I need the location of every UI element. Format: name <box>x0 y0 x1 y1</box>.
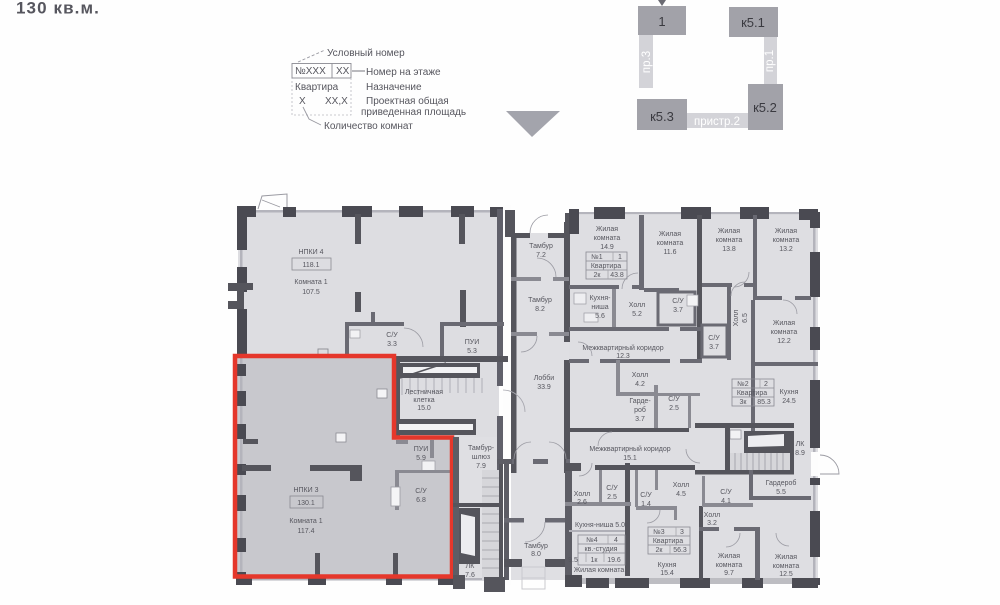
svg-text:2.6: 2.6 <box>577 499 587 506</box>
svg-text:НПКИ 4: НПКИ 4 <box>298 249 323 256</box>
svg-text:Межквартирный коридор: Межквартирный коридор <box>589 445 670 453</box>
svg-text:Условный номер: Условный номер <box>327 48 405 59</box>
svg-text:Жилая: Жилая <box>596 226 618 233</box>
svg-text:1: 1 <box>618 254 622 261</box>
svg-text:№XXX: №XXX <box>295 66 326 77</box>
svg-text:комната: комната <box>594 235 621 242</box>
svg-text:С/У: С/У <box>672 298 684 305</box>
svg-text:к5.2: к5.2 <box>753 100 777 115</box>
svg-text:15.1: 15.1 <box>623 455 637 462</box>
svg-text:7.6: 7.6 <box>465 572 475 579</box>
svg-text:Холл: Холл <box>733 310 740 327</box>
svg-text:12.3: 12.3 <box>616 353 630 360</box>
svg-text:3.7: 3.7 <box>709 344 719 351</box>
svg-text:13.8: 13.8 <box>722 246 736 253</box>
svg-text:роб: роб <box>634 406 646 414</box>
svg-text:комната: комната <box>716 237 743 244</box>
svg-text:6.8: 6.8 <box>416 497 426 504</box>
svg-text:Кухня: Кухня <box>658 562 677 569</box>
svg-text:Кухня: Кухня <box>780 389 799 396</box>
svg-text:Жилая комната: Жилая комната <box>574 567 625 574</box>
svg-text:С/У: С/У <box>720 489 732 496</box>
svg-text:2.5: 2.5 <box>607 494 617 501</box>
svg-text:Тамбур: Тамбур <box>529 242 553 250</box>
svg-text:6.5: 6.5 <box>742 313 749 323</box>
svg-text:13.2: 13.2 <box>779 246 793 253</box>
svg-text:кв.-студия: кв.-студия <box>585 546 618 553</box>
svg-text:1: 1 <box>658 14 665 29</box>
svg-text:Назначение: Назначение <box>366 82 422 93</box>
svg-text:3к: 3к <box>740 399 748 406</box>
svg-text:Кухня-: Кухня- <box>589 295 611 302</box>
svg-text:117.4: 117.4 <box>298 528 315 535</box>
svg-text:НПКИ 3: НПКИ 3 <box>293 487 318 494</box>
svg-text:Кухня-ниша 5.0: Кухня-ниша 5.0 <box>575 522 625 529</box>
svg-text:Количество комнат: Количество комнат <box>324 121 413 132</box>
svg-text:№3: №3 <box>653 529 665 536</box>
svg-text:Межквартирный коридор: Межквартирный коридор <box>582 344 663 352</box>
svg-text:Гардероб: Гардероб <box>766 479 797 487</box>
svg-text:Жилая: Жилая <box>718 553 740 560</box>
svg-text:14.9: 14.9 <box>600 244 614 251</box>
svg-text:Комната 1: Комната 1 <box>289 518 322 525</box>
svg-text:Проектная общая: Проектная общая <box>366 95 449 107</box>
svg-text:33.9: 33.9 <box>537 384 551 391</box>
svg-text:Гарде-: Гарде- <box>629 398 651 405</box>
svg-text:к5.1: к5.1 <box>741 15 765 30</box>
svg-text:3.2: 3.2 <box>707 520 717 527</box>
svg-text:комната: комната <box>773 563 800 570</box>
svg-text:9.5: 9.5 <box>568 557 578 564</box>
svg-text:к5.3: к5.3 <box>650 109 674 124</box>
svg-text:3.3: 3.3 <box>387 341 397 348</box>
svg-text:2: 2 <box>764 381 768 388</box>
svg-text:ЛК: ЛК <box>466 563 476 570</box>
svg-text:1.4: 1.4 <box>641 501 651 508</box>
svg-text:15.4: 15.4 <box>660 570 674 577</box>
svg-text:11.6: 11.6 <box>663 249 676 256</box>
svg-text:С/У: С/У <box>640 492 652 499</box>
svg-text:ЛК: ЛК <box>796 441 806 448</box>
svg-text:107.5: 107.5 <box>302 289 320 296</box>
svg-text:118.1: 118.1 <box>303 262 320 269</box>
svg-text:Квартира: Квартира <box>653 538 683 545</box>
svg-text:комната: комната <box>773 237 800 244</box>
svg-text:№2: №2 <box>737 381 749 388</box>
svg-text:15.0: 15.0 <box>417 405 431 412</box>
svg-text:Холл: Холл <box>629 302 646 309</box>
svg-text:24.5: 24.5 <box>782 398 796 405</box>
svg-text:ПУИ: ПУИ <box>465 339 480 346</box>
svg-text:С/У: С/У <box>668 396 680 403</box>
svg-text:Жилая: Жилая <box>718 228 740 235</box>
svg-text:12.2: 12.2 <box>777 338 791 345</box>
svg-text:Лестничная: Лестничная <box>405 389 443 396</box>
svg-text:Жилая: Жилая <box>773 320 795 327</box>
svg-text:Жилая: Жилая <box>775 228 797 235</box>
svg-text:Холл: Холл <box>704 512 721 519</box>
svg-text:Жилая: Жилая <box>775 554 797 561</box>
svg-text:№4: №4 <box>586 537 598 544</box>
svg-text:ПУИ: ПУИ <box>414 446 429 453</box>
svg-text:ниша: ниша <box>591 304 608 311</box>
svg-text:Квартира: Квартира <box>737 390 767 397</box>
svg-text:Тамбур: Тамбур <box>528 296 552 304</box>
svg-text:5.9: 5.9 <box>416 455 426 462</box>
svg-text:3.7: 3.7 <box>673 307 683 314</box>
svg-text:8.9: 8.9 <box>795 450 805 457</box>
svg-text:7.2: 7.2 <box>536 252 546 259</box>
svg-text:Тамбур-: Тамбур- <box>468 444 495 452</box>
svg-text:комната: комната <box>657 240 684 247</box>
svg-text:5.6: 5.6 <box>595 313 605 320</box>
svg-text:4.5: 4.5 <box>676 491 686 498</box>
svg-text:5.2: 5.2 <box>632 311 642 318</box>
svg-text:8.0: 8.0 <box>531 551 541 558</box>
svg-text:XX,X: XX,X <box>325 96 348 107</box>
svg-text:3: 3 <box>680 529 684 536</box>
svg-text:3.7: 3.7 <box>635 416 645 423</box>
svg-text:Холл: Холл <box>632 372 649 379</box>
svg-text:130.1: 130.1 <box>297 500 315 507</box>
svg-text:Холл: Холл <box>673 482 690 489</box>
svg-text:№1: №1 <box>591 254 603 261</box>
svg-text:С/У: С/У <box>386 332 398 339</box>
svg-text:2.5: 2.5 <box>669 405 679 412</box>
svg-text:Квартира: Квартира <box>295 82 339 93</box>
svg-text:12.5: 12.5 <box>779 571 793 578</box>
svg-text:7.9: 7.9 <box>476 463 486 470</box>
svg-text:Жилая: Жилая <box>659 231 681 238</box>
svg-text:8.2: 8.2 <box>535 306 545 313</box>
svg-text:пр.1: пр.1 <box>764 50 776 72</box>
svg-text:1к: 1к <box>591 557 599 564</box>
svg-text:шлюз: шлюз <box>472 454 490 461</box>
svg-text:пр.3: пр.3 <box>641 51 653 73</box>
svg-text:С/У: С/У <box>708 335 720 342</box>
svg-text:56.3: 56.3 <box>673 547 687 554</box>
svg-text:5.3: 5.3 <box>467 348 477 355</box>
svg-text:С/У: С/У <box>606 485 618 492</box>
svg-text:85.3: 85.3 <box>757 399 771 406</box>
svg-text:4: 4 <box>614 537 618 544</box>
svg-text:2к: 2к <box>594 272 602 279</box>
svg-text:приведенная площадь: приведенная площадь <box>361 107 466 118</box>
svg-text:Холл: Холл <box>574 491 591 498</box>
svg-text:130 кв.м.: 130 кв.м. <box>16 0 100 18</box>
svg-text:Квартира: Квартира <box>591 263 621 270</box>
svg-text:Лобби: Лобби <box>534 374 555 382</box>
svg-text:комната: комната <box>716 562 743 569</box>
svg-text:пристр.2: пристр.2 <box>694 116 740 128</box>
svg-text:43.8: 43.8 <box>610 272 624 279</box>
svg-text:X: X <box>299 96 306 107</box>
svg-text:клетка: клетка <box>413 397 434 404</box>
svg-text:4.2: 4.2 <box>635 381 645 388</box>
svg-text:Комната 1: Комната 1 <box>294 279 327 286</box>
svg-text:4.1: 4.1 <box>721 498 731 505</box>
svg-text:С/У: С/У <box>415 488 427 495</box>
svg-text:комната: комната <box>771 329 798 336</box>
svg-text:Тамбур: Тамбур <box>524 542 548 550</box>
svg-text:9.7: 9.7 <box>724 570 734 577</box>
svg-text:XX: XX <box>336 66 350 77</box>
svg-text:5.5: 5.5 <box>776 489 786 496</box>
svg-text:Номер на этаже: Номер на этаже <box>366 67 441 78</box>
svg-text:19.6: 19.6 <box>607 557 621 564</box>
svg-text:2к: 2к <box>656 547 664 554</box>
